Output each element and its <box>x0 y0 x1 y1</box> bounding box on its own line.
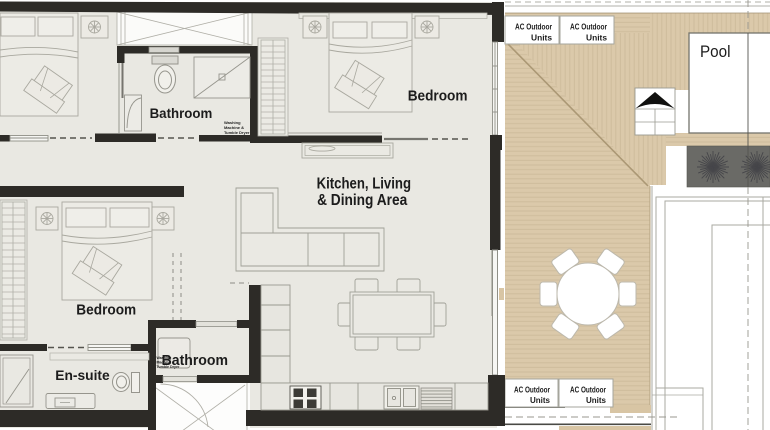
svg-text:AC Outdoor: AC Outdoor <box>570 386 606 395</box>
svg-text:& Dining Area: & Dining Area <box>317 192 407 209</box>
svg-text:Tumble Dryer: Tumble Dryer <box>224 130 250 135</box>
svg-text:Units: Units <box>586 396 607 405</box>
svg-text:Bedroom: Bedroom <box>408 89 468 105</box>
svg-text:Bedroom: Bedroom <box>76 303 136 319</box>
svg-text:Bathroom: Bathroom <box>162 353 228 369</box>
svg-text:Kitchen, Living: Kitchen, Living <box>317 175 411 192</box>
svg-text:En-suite: En-suite <box>55 367 110 383</box>
svg-text:AC Outdoor: AC Outdoor <box>514 386 550 395</box>
svg-text:Units: Units <box>586 34 608 43</box>
svg-text:Units: Units <box>530 396 551 405</box>
svg-text:Units: Units <box>531 34 553 43</box>
svg-text:AC Outdoor: AC Outdoor <box>570 23 607 32</box>
svg-text:AC Outdoor: AC Outdoor <box>515 23 552 32</box>
svg-text:Pool: Pool <box>700 43 731 61</box>
svg-text:Bathroom: Bathroom <box>150 105 213 121</box>
